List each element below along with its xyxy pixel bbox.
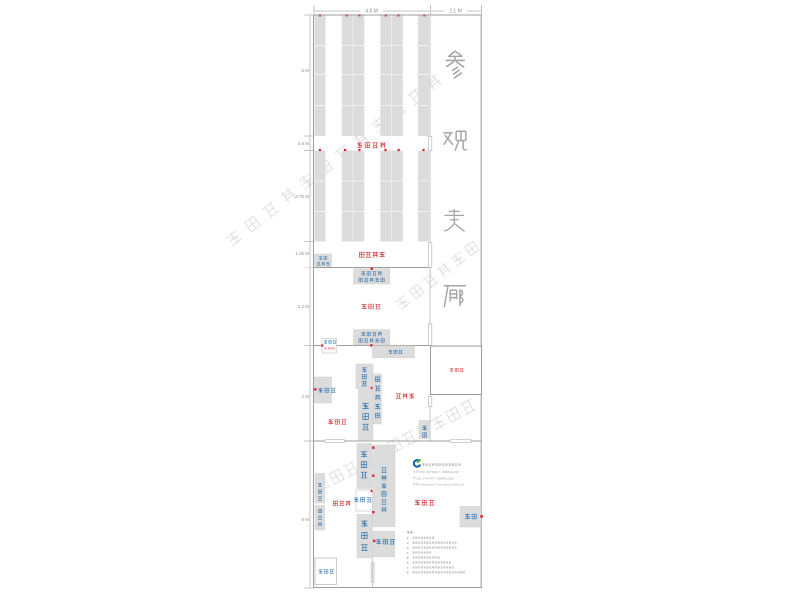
svg-text:1.05 M: 1.05 M [295,251,309,256]
svg-text:6 M: 6 M [301,517,309,522]
svg-text::: : [413,531,414,535]
svg-text:4 M: 4 M [301,394,309,399]
svg-text:QQ: 57437467 15866411352: QQ: 57437467 15866411352 [417,477,455,481]
svg-text:8.: 8. [407,571,410,575]
svg-text:2.1 M: 2.1 M [449,8,462,14]
svg-text:4.: 4. [407,551,410,555]
svg-text:0.6 M: 0.6 M [298,141,310,146]
svg-text:3.: 3. [407,546,410,550]
svg-text:2.: 2. [407,541,410,545]
svg-text:5 M: 5 M [301,68,309,73]
svg-text:(0.6m²): (0.6m²) [324,346,335,350]
svg-text:3.75 M: 3.75 M [295,194,309,199]
svg-text:3.2 M: 3.2 M [298,304,310,309]
svg-text:5.: 5. [407,556,410,560]
svg-text:0531-82799827, 15866411352: 0531-82799827, 15866411352 [420,470,460,474]
svg-text:4.8 M: 4.8 M [365,8,378,14]
svg-text:6.: 6. [407,561,410,565]
svg-text:1.: 1. [407,536,410,540]
svg-text:7.: 7. [407,566,410,570]
svg-text:www.sypet17.com www.cnl56j.c: www.sypet17.com www.cnl56j.com [420,483,465,487]
